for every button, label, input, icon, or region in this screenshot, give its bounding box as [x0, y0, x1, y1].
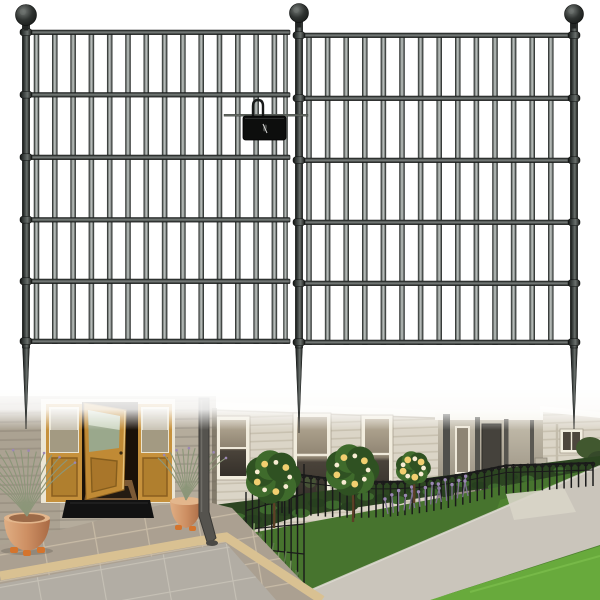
sidelight-glass-scene — [50, 430, 78, 452]
post-collar — [293, 95, 305, 102]
lavender-bloom — [397, 489, 400, 492]
fence-bar — [437, 34, 442, 345]
bed-plant-clump — [357, 492, 374, 500]
fence-bar — [548, 34, 553, 345]
fence-rail — [26, 218, 290, 223]
fence-bar — [307, 34, 312, 345]
pot-foot — [37, 547, 45, 553]
porch-window — [456, 427, 469, 473]
fence-rail — [26, 93, 290, 98]
lavender-bloom — [464, 475, 467, 478]
rose-flower — [401, 462, 406, 467]
glass-reflection — [304, 476, 316, 488]
post-collar — [20, 216, 32, 223]
rose-flower — [412, 456, 417, 461]
rose-flower — [405, 474, 410, 479]
post-collar — [20, 338, 32, 345]
rose-flower — [411, 474, 418, 481]
rose-flower — [366, 468, 371, 473]
fence-product — [16, 4, 584, 434]
fence-bar — [89, 31, 94, 344]
rose-flower — [351, 481, 358, 488]
fence-bar — [217, 31, 222, 344]
lavender-bloom — [450, 483, 453, 486]
rose-flower — [361, 457, 368, 464]
lavender-tip — [175, 449, 178, 452]
rose-flower — [333, 471, 340, 478]
fence-bar — [362, 34, 367, 345]
fence-bar — [381, 34, 386, 345]
ball-finial — [565, 5, 584, 24]
sidelight-glass-scene — [142, 430, 168, 452]
post-collar — [568, 32, 580, 39]
fence-post — [22, 24, 29, 348]
rose-flower — [283, 484, 288, 489]
lavender-bloom — [457, 479, 460, 482]
rose-flower — [255, 469, 260, 474]
door-panel — [91, 458, 117, 492]
fence-bar — [34, 31, 39, 344]
fence-bar — [180, 31, 185, 344]
post-collar — [568, 339, 580, 346]
rose-flower — [254, 479, 261, 486]
pot-foot — [175, 525, 182, 530]
lavender-bloom — [437, 482, 440, 485]
fence-rail — [299, 33, 574, 38]
fence-panel-left — [16, 5, 291, 430]
fence-bar — [511, 34, 516, 345]
garden-fence-product-image — [0, 0, 600, 600]
rose-flower — [352, 454, 357, 459]
bed-plant-clump — [292, 509, 310, 518]
ball-finial — [290, 4, 309, 23]
fence-bar — [474, 34, 479, 345]
fence-bar — [254, 31, 259, 344]
rose-flower — [362, 477, 367, 482]
post-collar — [293, 339, 305, 346]
lavender-bloom — [417, 490, 420, 493]
fence-bar — [107, 31, 112, 344]
fence-rail — [299, 220, 574, 225]
rose-flower — [341, 454, 348, 461]
fence-edge-bar — [284, 31, 288, 344]
lavender-bloom — [424, 486, 427, 489]
rose-flower — [400, 468, 407, 475]
fence-rail — [26, 30, 290, 35]
fence-rail — [26, 339, 290, 344]
fence-rail — [299, 158, 574, 163]
rose-flower — [342, 480, 347, 485]
lavender-bloom — [443, 478, 446, 481]
rose-flower — [418, 459, 425, 466]
fence-panel-right — [290, 4, 584, 434]
lavender-tip — [58, 456, 61, 459]
fence-rail — [26, 279, 290, 284]
fence-bar — [235, 31, 240, 344]
ball-highlight — [293, 7, 299, 13]
fence-rail — [26, 155, 290, 160]
fence-bar — [325, 34, 330, 345]
rose-flower — [419, 472, 424, 477]
ball-finial — [16, 5, 37, 26]
post-collar — [568, 157, 580, 164]
lavender-bloom — [463, 479, 466, 482]
rose-flower — [282, 464, 289, 471]
post-collar — [20, 278, 32, 285]
rose-flower — [272, 488, 279, 495]
fence-bar — [272, 31, 277, 344]
lavender-tip — [27, 449, 30, 452]
post-collar — [293, 280, 305, 287]
fence-bar — [144, 31, 149, 344]
rose-flower — [261, 461, 268, 468]
rose-flower — [404, 456, 411, 463]
lavender-tip — [74, 461, 77, 464]
lavender-tip — [188, 447, 191, 450]
post-collar — [293, 157, 305, 164]
fence-rail — [299, 96, 574, 101]
post-collar — [568, 219, 580, 226]
rose-flower — [274, 460, 279, 465]
ball-highlight — [568, 8, 574, 14]
lavender-bloom — [390, 493, 393, 496]
pot-foot — [10, 547, 18, 553]
post-collar — [568, 95, 580, 102]
rose-flower — [262, 487, 267, 492]
fence-bar — [400, 34, 405, 345]
lavender-tip — [12, 449, 15, 452]
post-collar — [20, 154, 32, 161]
ball-highlight — [20, 9, 26, 15]
lavender-bloom — [383, 497, 386, 500]
fence-bar — [199, 31, 204, 344]
post-collar — [568, 280, 580, 287]
fence-bar — [493, 34, 498, 345]
rose-flower — [287, 475, 292, 480]
fence-rail — [299, 281, 574, 286]
pot-foot — [23, 550, 31, 556]
post-collar — [20, 91, 32, 98]
pot-foot — [189, 526, 196, 531]
lavender-tip — [225, 457, 228, 460]
door-knob — [119, 451, 122, 454]
lavender-tip — [212, 451, 215, 454]
fence-bar — [52, 31, 57, 344]
fence-bar — [126, 31, 131, 344]
downspout-foot — [206, 540, 218, 546]
fence-bar — [455, 34, 460, 345]
fence-post — [295, 22, 302, 348]
fence-rail — [299, 340, 574, 345]
rose-flower — [421, 466, 426, 471]
lavender-bloom — [430, 482, 433, 485]
post-collar — [293, 32, 305, 39]
fence-bar — [162, 31, 167, 344]
scene-svg — [0, 0, 600, 600]
lavender-tip — [163, 454, 166, 457]
rose-flower — [334, 463, 339, 468]
fence-bar — [418, 34, 423, 345]
fence-bar — [71, 31, 76, 344]
fence-post — [570, 23, 577, 348]
lavender-bloom — [410, 485, 413, 488]
planter-pot-left — [1, 513, 53, 557]
bed-plant-clump — [341, 502, 358, 511]
lavender-tip — [43, 452, 46, 455]
lavender-bloom — [404, 494, 407, 497]
fence-bar — [344, 34, 349, 345]
fence-bar — [530, 34, 535, 345]
post-collar — [293, 219, 305, 226]
